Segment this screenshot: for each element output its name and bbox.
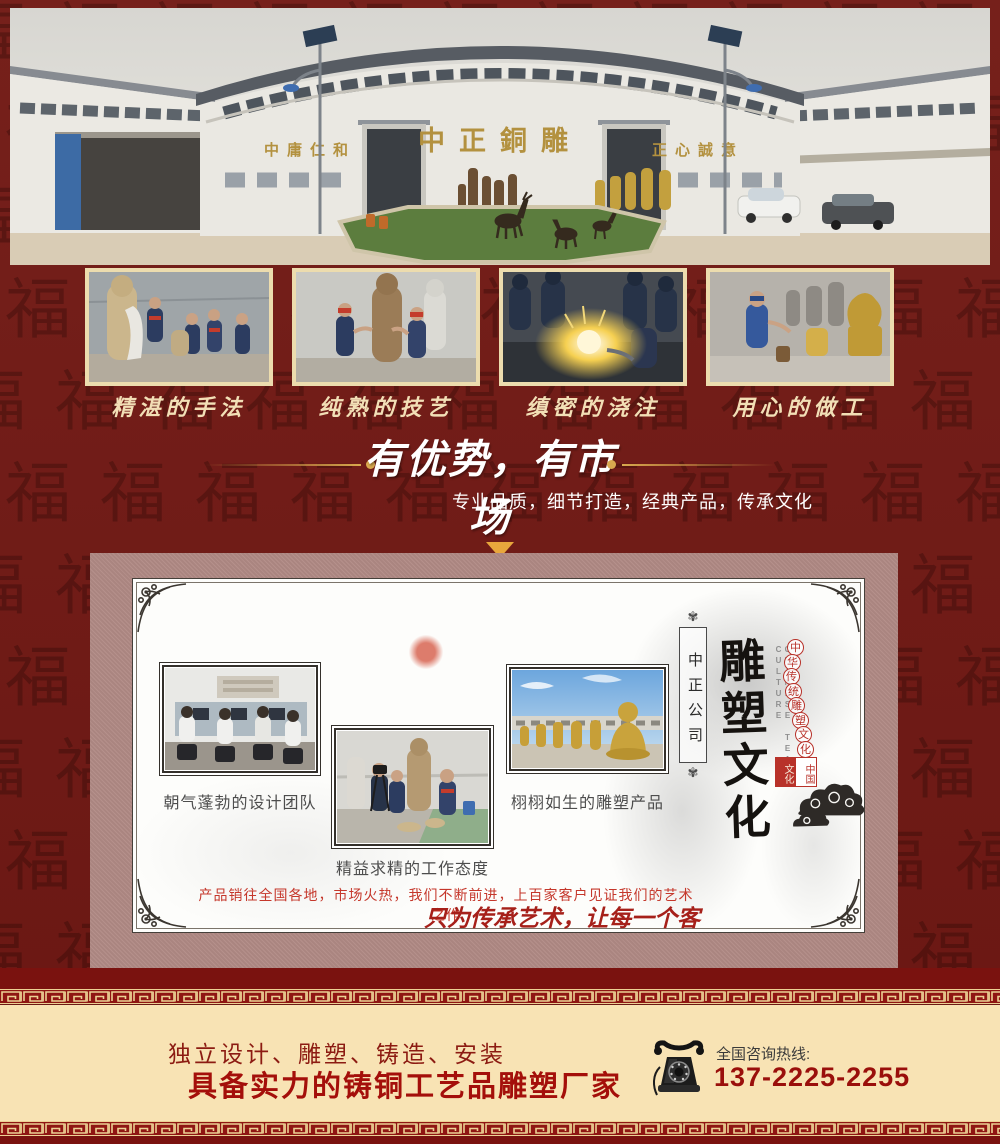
process-photo-handwork: [85, 268, 273, 386]
banner-bottom-ornament: ✾: [679, 765, 707, 781]
card-caption-work-attitude: 精益求精的工作态度: [331, 855, 494, 879]
meander-border-top: [0, 989, 1000, 1004]
brand-slogan-calligraphy: 只为传承艺术，让每一个客户满意: [417, 899, 707, 933]
seal-banner: 中正公司: [679, 627, 707, 763]
meander-border-bottom: [0, 1121, 1000, 1136]
gold-dot-right: [607, 460, 616, 469]
hotline-label: 全国咨询热线:: [716, 1043, 810, 1064]
card-corner-flourish: [134, 877, 188, 931]
footer-top-bar: [0, 968, 1000, 989]
polishing-illustration: [710, 272, 890, 382]
buddha-row-illustration: [512, 670, 663, 768]
process-caption-4: 用心的做工: [706, 390, 894, 422]
sign-right: 正心誠意: [652, 141, 744, 159]
card-corner-flourish: [134, 580, 188, 634]
work-attitude-photo: [331, 725, 494, 849]
auspicious-cloud-icon: [786, 777, 865, 835]
factory-illustration: 中正銅雕 中庸仁和 正心誠意: [10, 8, 990, 265]
sign-center: 中正銅雕: [418, 125, 582, 157]
workshop-illustration: [337, 731, 488, 843]
vintage-telephone-icon: [650, 1037, 708, 1097]
red-sun-motif: [409, 635, 443, 669]
card-caption-products: 栩栩如生的雕塑产品: [506, 789, 669, 813]
office-illustration: [165, 668, 315, 770]
process-photo-skill: [292, 268, 480, 386]
design-team-photo: [159, 662, 321, 776]
process-photo-casting: [499, 268, 687, 386]
footer-bottom-bar: [0, 1136, 1000, 1144]
promo-page: 福福福福福福福福福福福福福福福福福福福福福福福福福福福福福福福福福福福福福福福福…: [0, 0, 1000, 1144]
sculpture-product-photo: [506, 664, 669, 774]
vertical-title-calligraphy: 雕塑文化: [705, 636, 778, 848]
process-caption-3: 缜密的浇注: [499, 390, 687, 422]
sign-left: 中庸仁和: [264, 141, 356, 159]
footer-headline: 具备实力的铸铜工艺品雕塑厂家: [188, 1063, 622, 1105]
process-photo-finishing: [706, 268, 894, 386]
card-corner-flourish: [809, 877, 863, 931]
factory-panorama-photo: 中正銅雕 中庸仁和 正心誠意: [10, 8, 990, 265]
banner-top-ornament: ✾: [679, 609, 707, 625]
gold-divider-right: [622, 464, 775, 466]
gold-divider-left: [205, 464, 361, 466]
process-caption-2: 纯熟的技艺: [292, 390, 480, 422]
clay-sculpting-illustration: [89, 272, 269, 382]
card-caption-design-team: 朝气蓬勃的设计团队: [159, 789, 321, 813]
card-corner-flourish: [809, 580, 863, 634]
advantage-subtitle: 专业品质，细节打造，经典产品，传承文化: [452, 488, 813, 514]
hotline-phone-number: 137-2225-2255: [714, 1062, 910, 1093]
culture-card: 朝气蓬勃的设计团队: [132, 578, 865, 933]
statue-finishing-illustration: [296, 272, 476, 382]
process-caption-1: 精湛的手法: [85, 390, 273, 422]
bronze-pouring-illustration: [503, 272, 683, 382]
advantage-title: 有优势，有市场: [348, 427, 632, 543]
medallion-char: 化: [797, 741, 814, 758]
